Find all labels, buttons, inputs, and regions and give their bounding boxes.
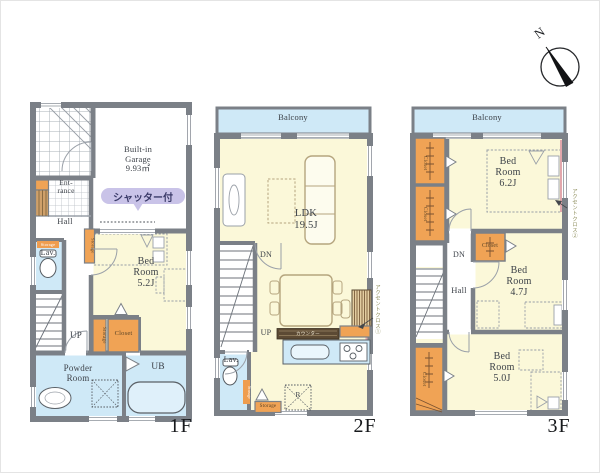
lav-storage-label: Storage [243, 380, 250, 404]
bedroom-5-0-label-line: Room [473, 362, 531, 373]
bedroom-5-2-label: Bed Room 5.2J [115, 256, 177, 290]
fridge-label: R [289, 391, 307, 399]
powder-room-label: Powder Room [47, 363, 109, 383]
bedroom-5-0-label-line: 5.0J [473, 373, 531, 384]
floor-tag-1f: 1F [161, 415, 201, 438]
powder-room-label-line: Powder [47, 363, 109, 373]
floorplan-2f: Balcony LDK 19.5J DN UP Lav. Storage Sto… [213, 104, 374, 416]
closet-b-label: Closet [416, 194, 427, 234]
garage-label-line: 9.93㎡ [105, 164, 171, 174]
up-label: UP [255, 329, 277, 338]
bedroom-4-7-label: Bed Room 4.7J [491, 265, 547, 299]
bedroom-6-2-label-line: Room [477, 167, 539, 178]
bedroom-5-2-label-line: Bed [115, 256, 177, 267]
garage-label: Built-in Garage 9.93㎡ [105, 145, 171, 174]
shutter-badge: シャッター付 [101, 188, 185, 204]
accent-cloth-2-arrow-icon [553, 197, 569, 211]
floor-tag-2f: 2F [345, 415, 385, 438]
storage-label: Storage [93, 319, 106, 352]
closet-label: Closet [108, 330, 139, 337]
closet-c-label: Closet [415, 358, 426, 400]
accent-cloth-2-note: アクセントクロス② [567, 183, 576, 243]
storage-side-label: Storage [85, 229, 95, 263]
compass: N [529, 27, 593, 99]
bedroom-4-7-label-line: Room [491, 276, 547, 287]
powder-room-label-line: Room [47, 373, 109, 383]
bedroom-6-2-label-line: Bed [477, 156, 539, 167]
bedroom-5-2-label-line: Room [115, 267, 177, 278]
up-label: UP [65, 330, 87, 340]
accent-cloth-1-arrow-icon [355, 315, 375, 331]
entrance-label-line: rance [45, 187, 87, 195]
hall-label: Hall [49, 217, 81, 227]
floorplan-3f: Balcony Bed Room 6.2J Closet Closet Clos… [409, 104, 569, 416]
ldk-label-line: 19.5J [275, 220, 337, 232]
dn-label: DN [255, 251, 277, 260]
balcony-label: Balcony [435, 113, 539, 123]
balcony-label: Balcony [241, 113, 345, 123]
entrance-label: Ent- rance [45, 179, 87, 196]
storage-label: Storage [255, 402, 281, 412]
lav-label: Lav. [34, 249, 62, 258]
bedroom-4-7-label-line: Bed [491, 265, 547, 276]
floor-tag-3f: 3F [539, 415, 579, 438]
bedroom-6-2-label: Bed Room 6.2J [477, 156, 539, 190]
bedroom-5-0-label-line: Bed [473, 351, 531, 362]
bedroom-6-2-label-line: 6.2J [477, 178, 539, 189]
closet-a-label: Closet [416, 146, 427, 180]
hall-label: Hall [445, 286, 473, 296]
lav-label: Lav. [217, 356, 245, 365]
dn-label: DN [447, 251, 471, 260]
counter-label: カウンター [277, 329, 339, 339]
bedroom-5-2-label-line: 5.2J [115, 278, 177, 289]
bedroom-4-7-label-line: 4.7J [491, 287, 547, 298]
floorplan-2f-drawing [213, 104, 374, 416]
floorplan-canvas: N [0, 0, 600, 473]
shutter-badge-tail [133, 203, 143, 211]
closet-d-label: Closet [475, 243, 505, 249]
ldk-label: LDK 19.5J [275, 208, 337, 232]
floorplan-1f: Built-in Garage 9.93㎡ シャッター付 Ent- rance … [29, 101, 193, 423]
lav-storage-label: Storage [37, 241, 59, 248]
ub-label: UB [141, 362, 175, 373]
ldk-label-line: LDK [275, 208, 337, 220]
bedroom-5-0-label: Bed Room 5.0J [473, 351, 531, 385]
